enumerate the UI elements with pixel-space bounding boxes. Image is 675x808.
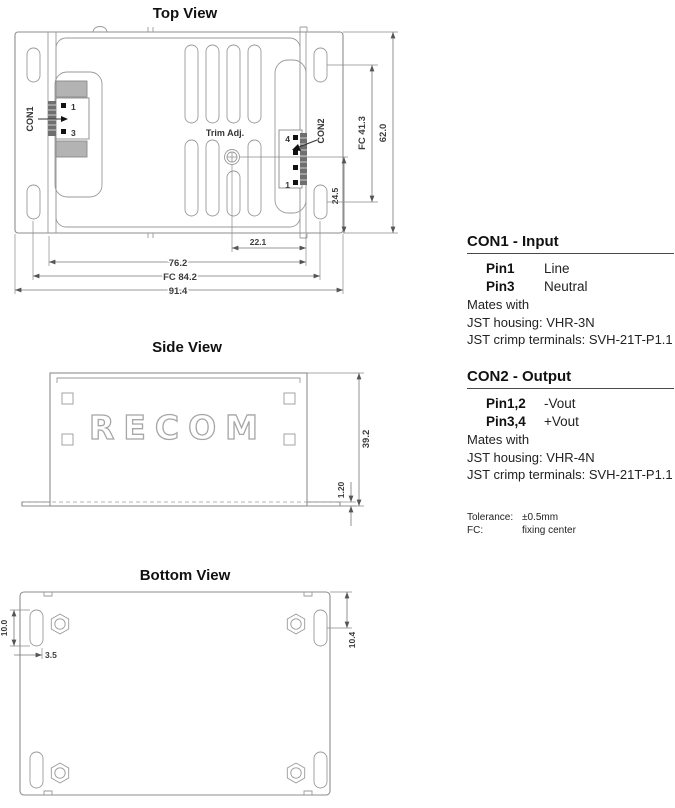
con2-pin34-value: +Vout <box>544 413 579 431</box>
bottom-plate-outline <box>20 592 330 795</box>
dim-22-1: 22.1 <box>250 237 267 247</box>
con1-label: CON1 <box>25 106 35 131</box>
con2-pin12-row: Pin1,2 -Vout <box>486 395 674 413</box>
side-lid-line <box>57 378 300 383</box>
bottom-mounting-slots <box>30 610 327 788</box>
dim-3-5: 3.5 <box>45 650 57 660</box>
con1-pin1-row: Pin1 Line <box>486 260 674 278</box>
standoff-hex-nuts <box>51 614 304 783</box>
con2-pin34-label: Pin3,4 <box>486 413 544 431</box>
con1-info-block: CON1 - Input Pin1 Line Pin3 Neutral Mate… <box>467 233 674 349</box>
screw-bump <box>93 27 107 33</box>
fixing-center-label: FC: <box>467 524 522 537</box>
dim-1-20: 1.20 <box>336 481 346 498</box>
con1-pin3-value: Neutral <box>544 278 588 296</box>
side-view-drawing: Side View RECOM 1.20 39.2 <box>0 330 440 530</box>
con1-pin3-row: Pin3 Neutral <box>486 278 674 296</box>
con2-info-block: CON2 - Output Pin1,2 -Vout Pin3,4 +Vout … <box>467 368 674 484</box>
con1-pin3-number: 3 <box>71 128 76 138</box>
con1-jst-crimp: JST crimp terminals: SVH-21T-P1.1 <box>467 332 674 349</box>
top-view-drawing: Top View <box>0 0 440 320</box>
top-view-title: Top View <box>153 5 218 22</box>
top-cover-outline <box>56 38 300 227</box>
side-flanges <box>22 502 340 506</box>
dim-39-2: 39.2 <box>361 430 372 449</box>
bottom-view-drawing: Bottom View 10.0 3.5 <box>0 555 440 808</box>
con2-hatch-bar <box>300 133 307 185</box>
con2-pin34-row: Pin3,4 +Vout <box>486 413 674 431</box>
side-view-title: Side View <box>152 339 222 356</box>
trim-adjust-label: Trim Adj. <box>206 128 244 138</box>
bottom-view-title: Bottom View <box>140 567 231 584</box>
con2-jst-housing: JST housing: VHR-4N <box>467 450 674 467</box>
tolerance-value: ±0.5mm <box>522 511 558 524</box>
con1-pin1-value: Line <box>544 260 570 278</box>
dim-10-4: 10.4 <box>347 631 357 648</box>
datasheet-mechanical-drawing: Top View <box>0 0 675 808</box>
con1-heading: CON1 - Input <box>467 233 674 254</box>
bottom-view-dimensions: 10.0 3.5 10.4 <box>0 592 357 660</box>
con1-pin1-label: Pin1 <box>486 260 544 278</box>
dim-76-2: 76.2 <box>169 258 188 269</box>
con2-heading: CON2 - Output <box>467 368 674 389</box>
footnotes-block: Tolerance: ±0.5mm FC: fixing center <box>467 511 674 537</box>
con1-jst-housing: JST housing: VHR-3N <box>467 315 674 332</box>
con2-pin1-number: 1 <box>285 180 290 190</box>
con1-mates-with: Mates with <box>467 297 674 314</box>
con2-pin12-label: Pin1,2 <box>486 395 544 413</box>
con2-label: CON2 <box>316 118 326 143</box>
fixing-center-value: fixing center <box>522 524 576 537</box>
tolerance-label: Tolerance: <box>467 511 522 524</box>
trim-adjust: Trim Adj. <box>206 128 244 165</box>
con2-mates-with: Mates with <box>467 432 674 449</box>
con1-connector: 1 3 CON1 <box>25 72 102 197</box>
con1-pin1-number: 1 <box>71 102 76 112</box>
dim-fc-84-2: FC 84.2 <box>163 272 197 283</box>
con1-pin3-label: Pin3 <box>486 278 544 296</box>
recom-logo: RECOM <box>89 408 267 447</box>
bottom-edge-notches <box>44 592 312 795</box>
dim-10-0: 10.0 <box>0 619 9 636</box>
dim-91-4: 91.4 <box>169 286 188 297</box>
con2-pin4-number: 4 <box>285 134 290 144</box>
tolerance-row: Tolerance: ±0.5mm <box>467 511 674 524</box>
con2-pin12-value: -Vout <box>544 395 576 413</box>
con2-jst-crimp: JST crimp terminals: SVH-21T-P1.1 <box>467 467 674 484</box>
con2-connector: 4 1 CON2 <box>275 60 326 213</box>
dim-62-0: 62.0 <box>378 124 389 143</box>
fixing-center-row: FC: fixing center <box>467 524 674 537</box>
dim-fc-41-3: FC 41.3 <box>357 116 368 150</box>
